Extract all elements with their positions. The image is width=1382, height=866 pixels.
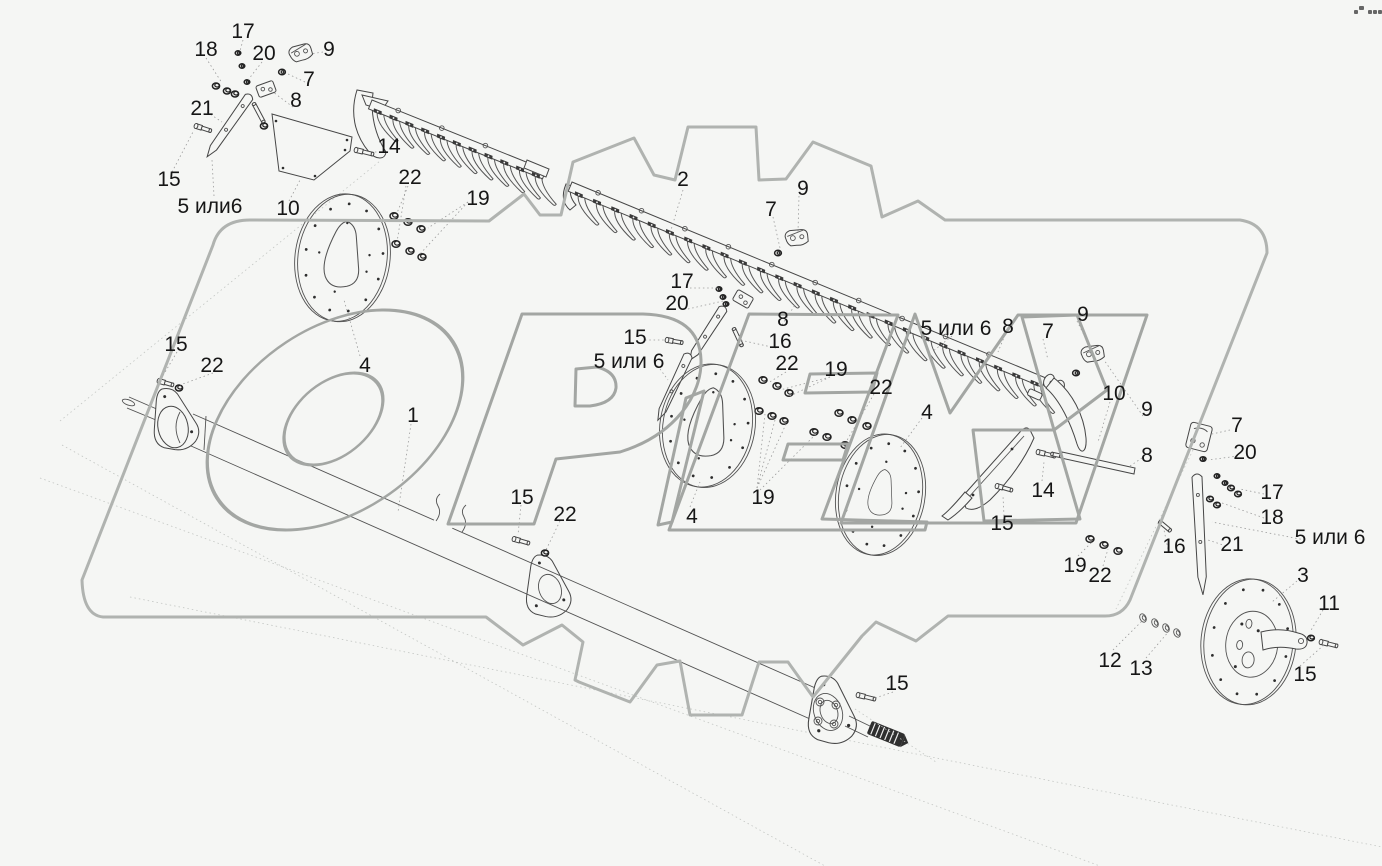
svg-text:22: 22 [869, 376, 892, 399]
svg-text:18: 18 [1260, 506, 1283, 529]
svg-text:13: 13 [1129, 657, 1152, 680]
svg-text:15: 15 [623, 326, 646, 349]
svg-text:22: 22 [1088, 564, 1111, 587]
svg-text:21: 21 [190, 97, 213, 120]
svg-text:10: 10 [1102, 382, 1125, 405]
svg-text:22: 22 [775, 352, 798, 375]
svg-text:7: 7 [1042, 320, 1054, 343]
svg-text:18: 18 [194, 38, 217, 61]
svg-text:22: 22 [398, 166, 421, 189]
svg-text:8: 8 [1002, 315, 1014, 338]
svg-text:19: 19 [1063, 554, 1086, 577]
svg-text:5 или 6: 5 или 6 [921, 317, 992, 340]
svg-text:15: 15 [157, 168, 180, 191]
svg-text:5 или 6: 5 или 6 [1295, 526, 1366, 549]
svg-text:19: 19 [824, 358, 847, 381]
svg-text:22: 22 [200, 354, 223, 377]
svg-text:12: 12 [1098, 649, 1121, 672]
svg-text:15: 15 [164, 333, 187, 356]
svg-text:7: 7 [303, 68, 315, 91]
svg-text:9: 9 [1077, 303, 1089, 326]
svg-text:15: 15 [885, 672, 908, 695]
svg-text:20: 20 [1233, 441, 1256, 464]
svg-text:20: 20 [252, 42, 275, 65]
svg-text:8: 8 [1141, 444, 1153, 467]
svg-text:1: 1 [407, 404, 419, 427]
svg-text:11: 11 [1318, 592, 1340, 615]
svg-text:15: 15 [990, 512, 1013, 535]
svg-text:16: 16 [1162, 535, 1185, 558]
svg-text:3: 3 [1297, 564, 1309, 587]
svg-text:7: 7 [1231, 414, 1243, 437]
svg-text:22: 22 [553, 503, 576, 526]
svg-text:16: 16 [768, 330, 791, 353]
svg-text:14: 14 [1031, 479, 1055, 502]
svg-text:4: 4 [686, 505, 698, 528]
svg-text:10: 10 [276, 197, 299, 220]
svg-text:4: 4 [359, 354, 371, 377]
svg-text:17: 17 [1260, 481, 1283, 504]
svg-text:20: 20 [665, 292, 688, 315]
svg-text:21: 21 [1220, 533, 1243, 556]
svg-text:5 или6: 5 или6 [178, 195, 243, 218]
svg-text:4: 4 [921, 401, 933, 424]
svg-text:7: 7 [765, 198, 777, 221]
svg-text:15: 15 [510, 486, 533, 509]
svg-text:19: 19 [466, 187, 489, 210]
svg-text:17: 17 [670, 270, 693, 293]
svg-text:5 или 6: 5 или 6 [594, 350, 665, 373]
svg-text:9: 9 [323, 38, 335, 61]
svg-text:9: 9 [1141, 398, 1153, 421]
svg-text:2: 2 [677, 168, 689, 191]
svg-text:8: 8 [290, 89, 302, 112]
svg-text:17: 17 [231, 20, 254, 43]
svg-text:14: 14 [377, 135, 401, 158]
svg-text:19: 19 [751, 486, 774, 509]
svg-text:15: 15 [1293, 663, 1316, 686]
svg-text:8: 8 [777, 308, 789, 331]
svg-text:9: 9 [797, 177, 809, 200]
